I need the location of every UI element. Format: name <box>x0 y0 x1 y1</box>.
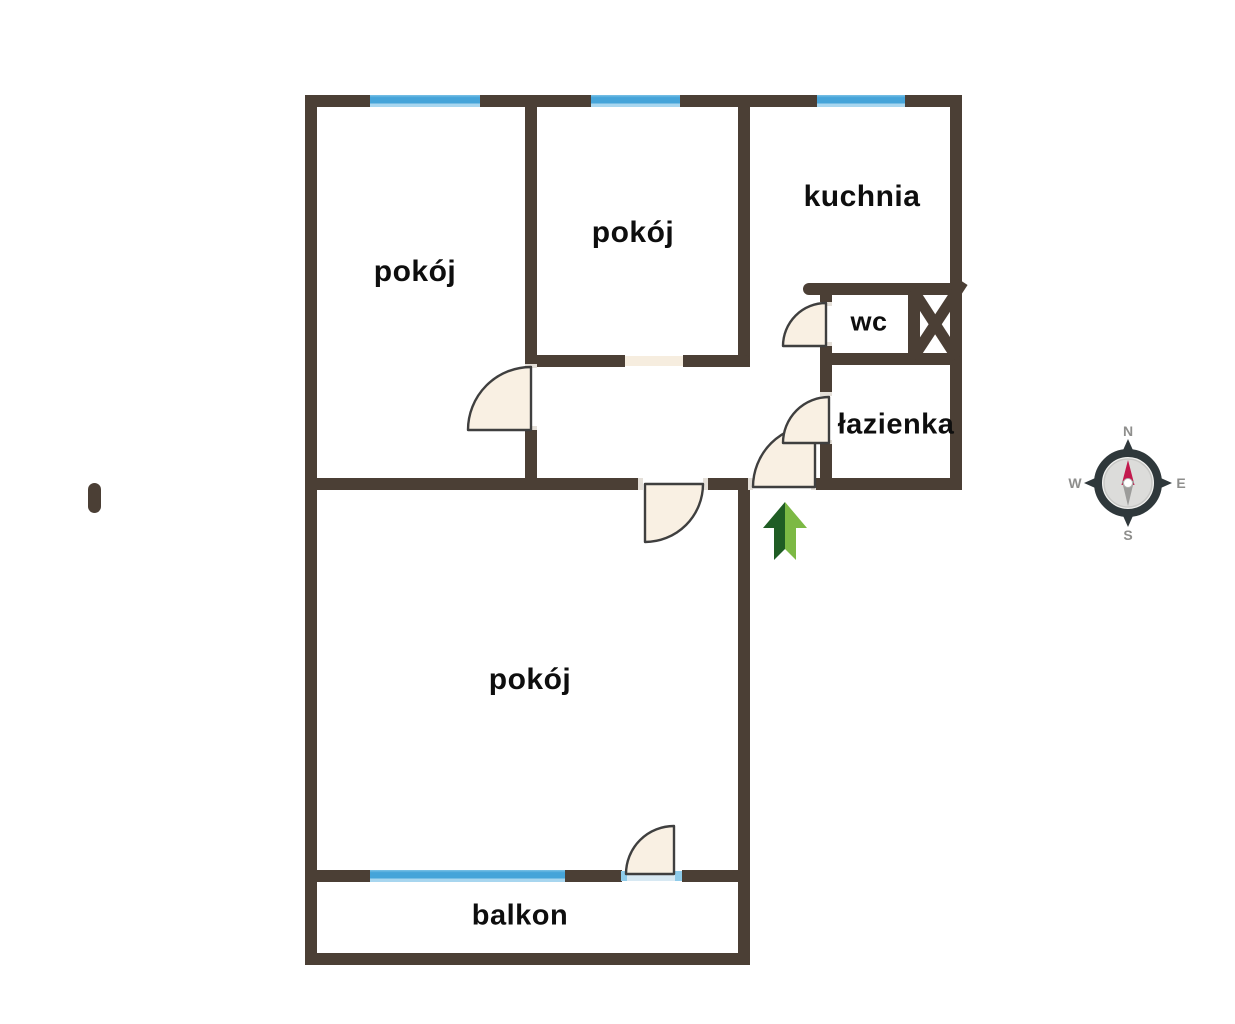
jamb <box>748 478 753 490</box>
compass-label-east: E <box>1176 475 1185 491</box>
wall-wc-top <box>803 283 962 295</box>
wall-middle-center <box>703 478 752 490</box>
door-arc-bathroom <box>783 397 829 443</box>
window-room2 <box>591 95 680 107</box>
floor-level-marker <box>88 483 101 513</box>
jamb <box>703 478 708 490</box>
compass-label-north: N <box>1123 423 1133 439</box>
wall-shaft-left <box>908 295 920 353</box>
wall-hallway-vertical-3 <box>820 443 832 478</box>
balcony-door-threshold <box>627 871 675 881</box>
compass-points-icon <box>1084 439 1172 527</box>
compass-ring <box>1098 453 1158 513</box>
compass-rose: N S W E <box>1068 423 1188 543</box>
wall-wc-bottom <box>832 353 962 365</box>
door-arc-balcony <box>626 826 674 874</box>
wall-balcony-bottom <box>305 953 750 965</box>
wall-middle-right <box>815 478 962 490</box>
wall-hallway-vertical-2 <box>820 345 832 395</box>
jamb <box>525 364 537 368</box>
compass-center-dot <box>1124 479 1133 488</box>
jamb <box>811 478 816 490</box>
wall-room-large-right <box>738 490 750 965</box>
room-label-bathroom: łazienka <box>838 411 955 440</box>
door-arc-room1 <box>468 367 531 430</box>
wall-divider-room2-kitchen <box>738 95 750 367</box>
window-room-large <box>370 870 565 882</box>
door-arc-entrance <box>753 425 815 487</box>
wall-room-large-bottom-1 <box>305 870 370 882</box>
wall-room-large-bottom-3 <box>682 870 750 882</box>
wall-room2-bottom-right <box>683 355 750 367</box>
wall-middle-left <box>305 478 643 490</box>
jamb <box>820 302 832 306</box>
compass-label-south: S <box>1123 527 1132 543</box>
wall-room-large-bottom-2 <box>565 870 622 882</box>
floor-plan: N S W E pokój pokój kuchnia wc łazienka … <box>0 0 1235 1024</box>
room-label-kitchen: kuchnia <box>804 182 921 212</box>
jamb <box>525 426 537 430</box>
balcony-threshold-jamb-right <box>675 871 682 881</box>
wall-room2-bottom-left <box>525 355 625 367</box>
compass-label-west: W <box>1068 475 1082 491</box>
door-arc-wc <box>783 303 826 346</box>
jamb <box>820 342 832 346</box>
jamb <box>638 478 643 490</box>
jamb <box>820 392 832 396</box>
window-room1 <box>370 95 480 107</box>
opening-room2 <box>625 356 683 366</box>
entrance-arrow-icon <box>763 502 807 560</box>
jamb <box>820 440 832 444</box>
compass-needle-south <box>1122 481 1134 506</box>
room-label-room-large: pokój <box>489 665 572 695</box>
compass-needle-north <box>1122 460 1135 485</box>
wall-divider-room1-room2 <box>525 95 537 363</box>
room-label-room-top-middle: pokój <box>592 218 675 248</box>
wall-left <box>305 95 317 965</box>
room-label-room-top-left: pokój <box>374 257 457 287</box>
room-label-wc: wc <box>850 309 887 336</box>
door-arc-room-large <box>645 484 703 542</box>
room-label-balcony: balkon <box>472 902 568 931</box>
window-kitchen <box>817 95 905 107</box>
compass-face <box>1104 459 1152 507</box>
